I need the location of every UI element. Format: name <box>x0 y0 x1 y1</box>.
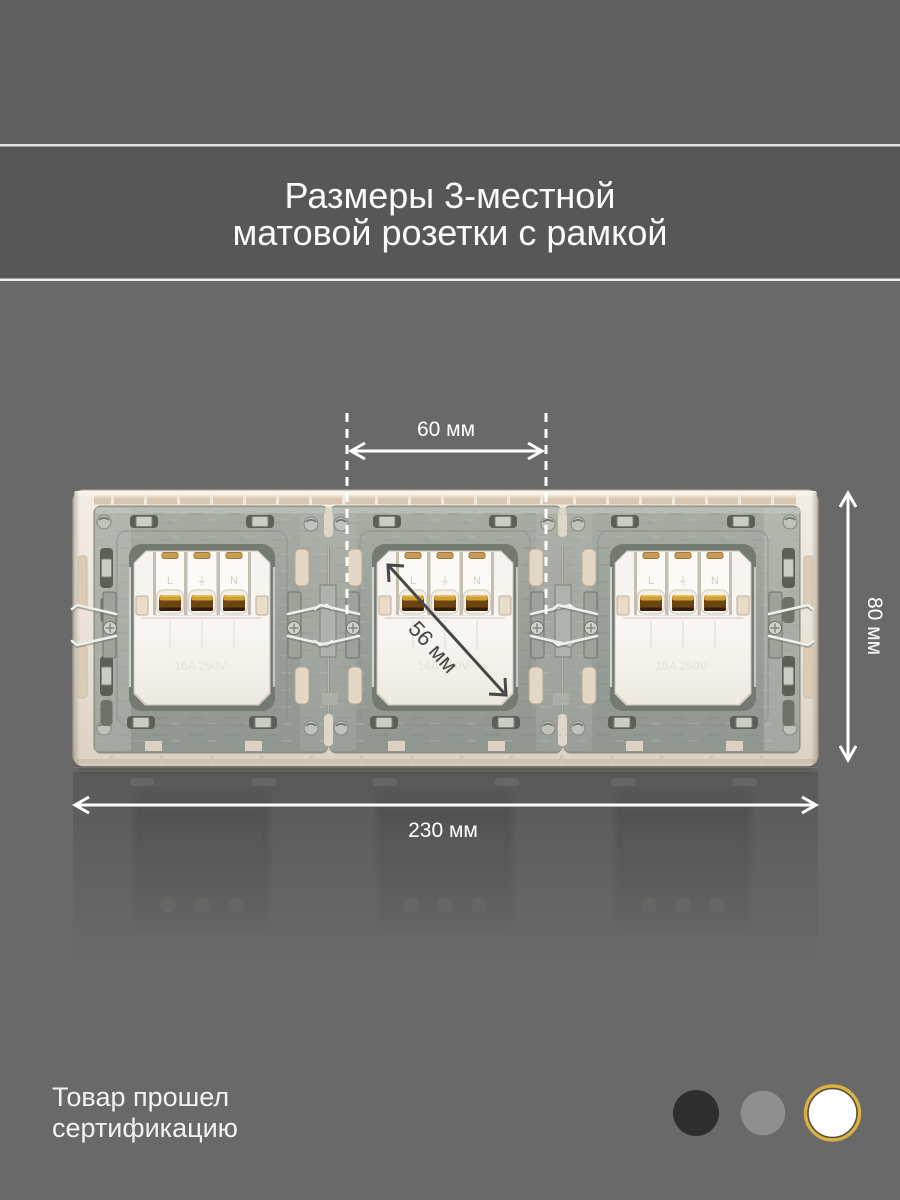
svg-text:Товар прошел: Товар прошел <box>52 1082 229 1112</box>
svg-text:Размеры 3-местной: Размеры 3-местной <box>285 175 616 216</box>
svg-text:сертификацию: сертификацию <box>52 1113 238 1143</box>
svg-text:матовой розетки с рамкой: матовой розетки с рамкой <box>233 212 668 253</box>
svg-text:60 мм: 60 мм <box>417 418 475 441</box>
svg-text:230 мм: 230 мм <box>408 819 478 842</box>
svg-text:80 мм: 80 мм <box>863 597 886 655</box>
